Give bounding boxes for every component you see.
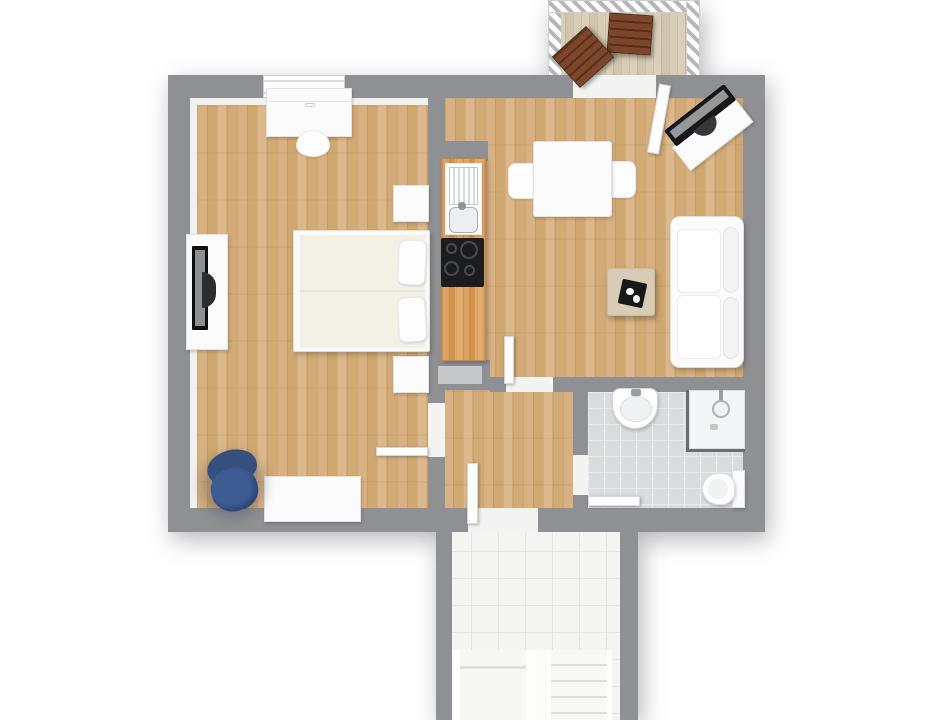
dining-table (533, 141, 612, 217)
shower-drain (710, 424, 718, 430)
balcony-railing-top (548, 0, 700, 13)
burner-bottom-right (464, 265, 475, 276)
nightstand-north (393, 185, 429, 222)
burner-top-left (446, 243, 457, 254)
wall-bedroom-hall-upper (428, 390, 445, 403)
tray-item-2 (633, 295, 640, 303)
wall-bottom-east (538, 508, 765, 532)
stair-flight-right (546, 650, 612, 720)
coffee-table (607, 268, 655, 316)
shower-glass-left (686, 390, 689, 452)
sofa (670, 216, 744, 368)
wall-bath-west-lower (573, 495, 588, 508)
apartment-floor-plan (0, 0, 932, 720)
sofa-back-cushion-1 (723, 227, 739, 293)
patio-table (607, 13, 654, 56)
wall-top-main (168, 75, 573, 98)
stair-flight-left (452, 650, 536, 720)
wall-bath-west-upper (573, 392, 588, 455)
stair-left-stringer-b (526, 650, 536, 720)
bathroom-door-leaf (588, 496, 640, 506)
bedroom-south-desk (264, 476, 361, 522)
sofa-seat-cushion-1 (677, 229, 721, 293)
nightstand-south (393, 356, 429, 393)
sink-drainer (449, 167, 478, 205)
bathroom-sink-faucet (631, 389, 641, 396)
bed-frame (293, 230, 430, 352)
wall-bedroom-hall-lower (428, 457, 445, 508)
shower-head (712, 400, 730, 418)
desk-handle (305, 103, 315, 107)
balcony-railing-right (686, 0, 700, 79)
stair-left-step-edge (460, 666, 526, 669)
stair-right-stringer-a (546, 650, 551, 720)
sink-faucet (458, 202, 466, 210)
front-door-leaf (467, 463, 478, 524)
wall-right (743, 75, 765, 532)
bed-pillow-1 (397, 239, 427, 285)
living-room-door-leaf (504, 336, 514, 384)
bedroom-door-threshold (428, 403, 445, 457)
entry-wall-west (436, 530, 452, 720)
stair-left-stringer-a (452, 650, 460, 720)
bathroom-door-threshold (573, 455, 588, 495)
sofa-back-cushion-2 (723, 297, 739, 359)
sink-bowl (449, 207, 478, 233)
kitchen-south-inset (438, 366, 482, 384)
dining-chair-right (609, 161, 636, 198)
entry-wall-east (620, 530, 638, 720)
bedroom-desk-chair (296, 130, 330, 157)
dining-chair-left (508, 163, 535, 199)
stair-right-stringer-b (607, 650, 612, 720)
sofa-seat-cushion-2 (677, 295, 721, 359)
toilet (700, 470, 746, 508)
shower-tray (689, 390, 745, 449)
toilet-seat (708, 479, 728, 499)
bed-mattress-split (300, 290, 425, 292)
kitchen-cooktop (441, 238, 484, 287)
shower-glass-bottom (686, 449, 745, 452)
stair-divider (536, 650, 546, 720)
bathroom-sink-basin (620, 396, 652, 422)
desk-edge-line (267, 101, 351, 102)
burner-top-right (460, 241, 478, 259)
bed-pillow-2 (397, 296, 427, 342)
shower (686, 390, 745, 452)
bedroom-door-leaf (376, 447, 428, 456)
tray-item-1 (626, 288, 634, 295)
burner-bottom-left (444, 261, 459, 276)
front-door-threshold (468, 508, 538, 532)
kitchen-sink-unit (445, 163, 482, 235)
